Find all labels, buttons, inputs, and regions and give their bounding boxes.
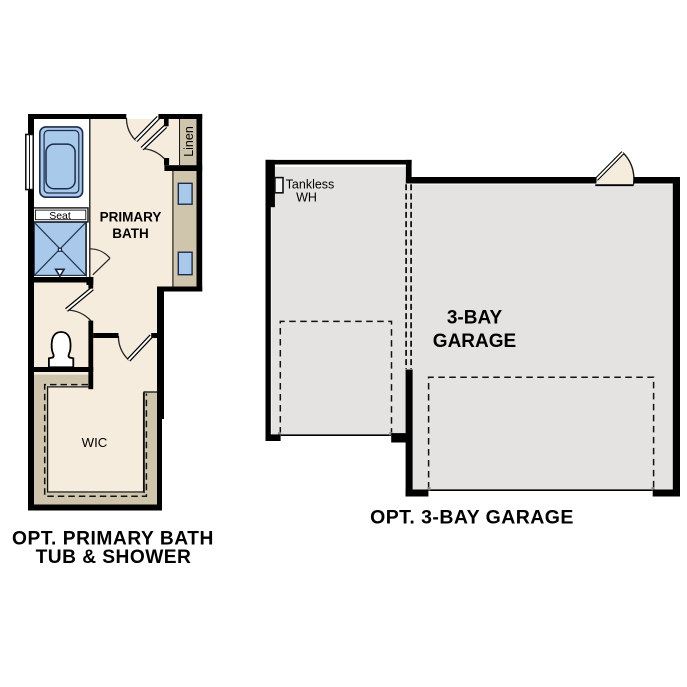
svg-text:TUB & SHOWER: TUB & SHOWER xyxy=(36,547,192,568)
svg-text:PRIMARY: PRIMARY xyxy=(100,210,162,225)
svg-text:OPT. 3-BAY GARAGE: OPT. 3-BAY GARAGE xyxy=(370,506,574,528)
svg-text:BATH: BATH xyxy=(112,226,149,241)
svg-text:Linen: Linen xyxy=(182,126,196,157)
svg-text:Tankless: Tankless xyxy=(286,177,335,191)
svg-text:Seat: Seat xyxy=(49,210,71,222)
svg-text:GARAGE: GARAGE xyxy=(433,331,516,352)
svg-text:WIC: WIC xyxy=(82,435,108,450)
svg-text:WH: WH xyxy=(296,190,317,204)
svg-text:3-BAY: 3-BAY xyxy=(447,307,503,328)
